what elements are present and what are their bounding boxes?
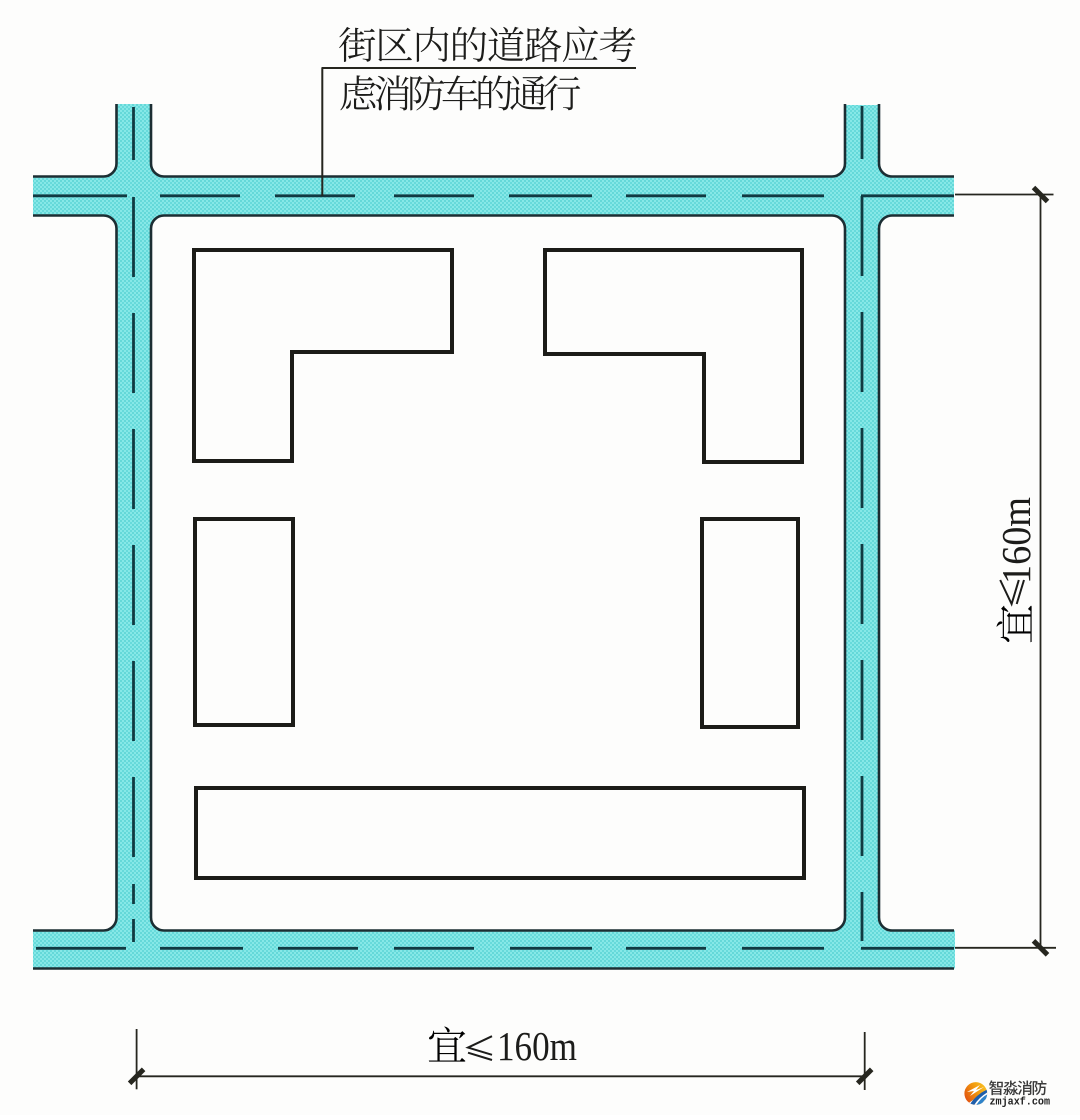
svg-text:zmjaxf.com: zmjaxf.com [990,1097,1051,1109]
svg-text:160m: 160m [497,1023,577,1069]
svg-text:160m: 160m [993,497,1039,584]
